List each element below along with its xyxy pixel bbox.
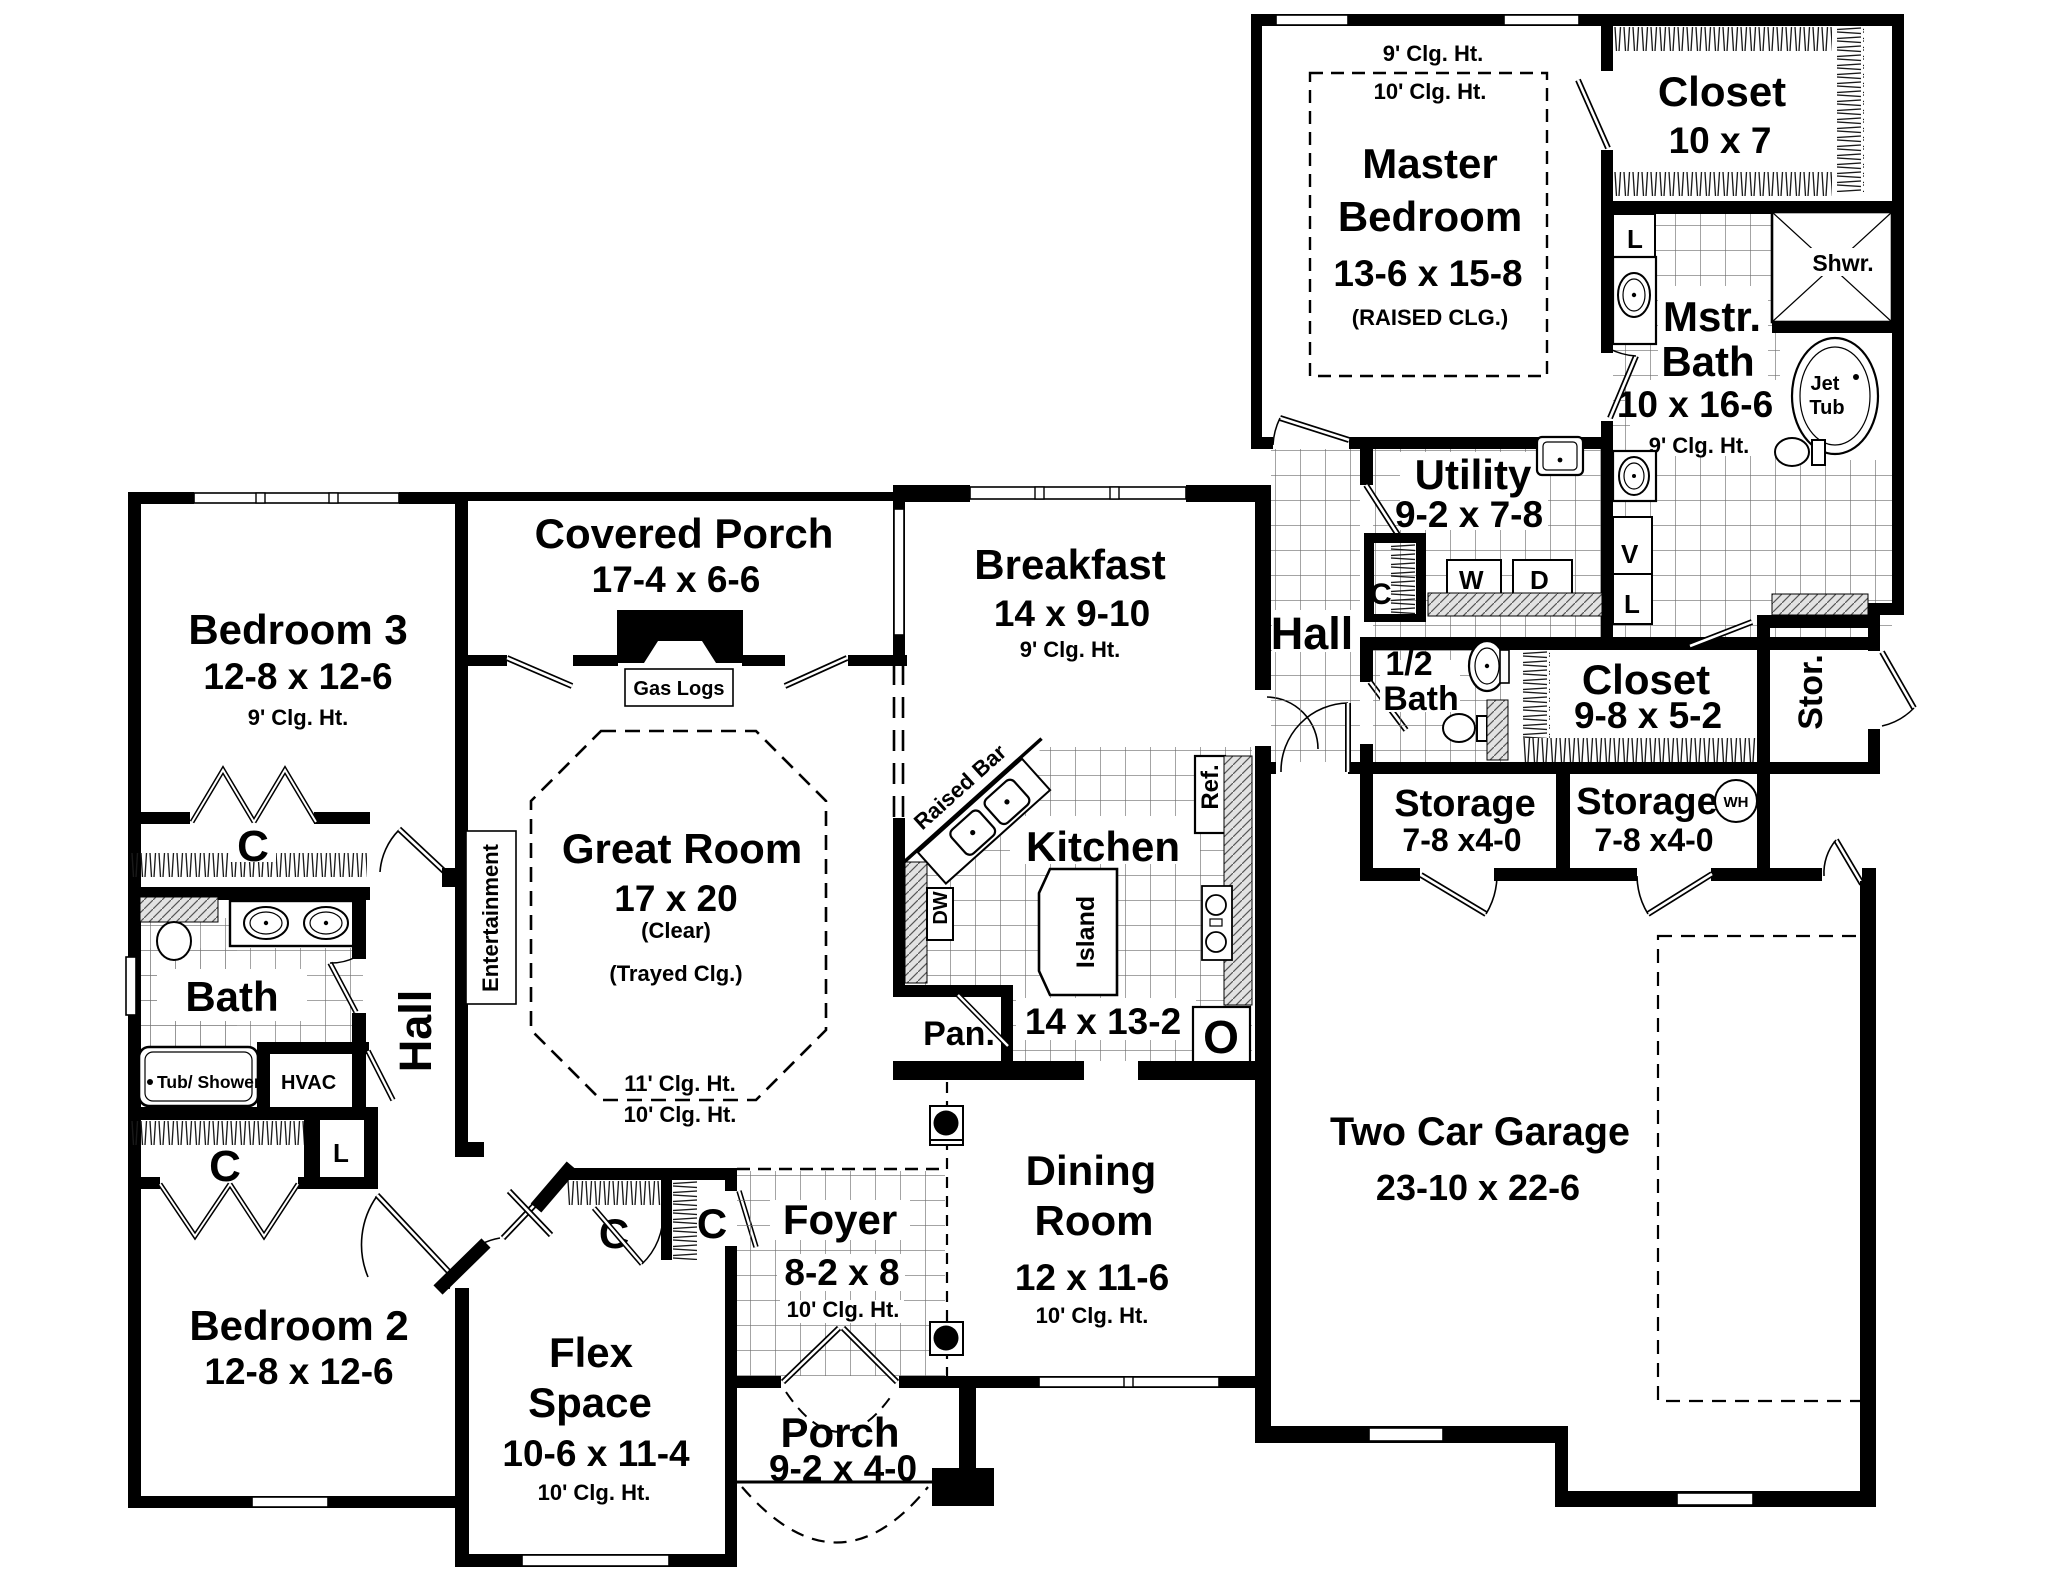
svg-text:Gas Logs: Gas Logs (633, 678, 724, 700)
svg-text:C: C (209, 1142, 241, 1191)
svg-text:Tub: Tub (1809, 397, 1844, 419)
svg-text:Dining: Dining (1026, 1147, 1157, 1194)
svg-text:9' Clg. Ht.: 9' Clg. Ht. (1649, 433, 1750, 458)
svg-text:Kitchen: Kitchen (1026, 823, 1180, 870)
svg-text:DW: DW (930, 891, 952, 924)
svg-text:Great Room: Great Room (562, 825, 802, 872)
svg-text:Breakfast: Breakfast (974, 541, 1165, 588)
svg-text:Hall: Hall (1271, 608, 1354, 659)
svg-text:Utility: Utility (1415, 451, 1532, 498)
svg-text:17-4 x 6-6: 17-4 x 6-6 (592, 559, 761, 600)
svg-text:10' Clg. Ht.: 10' Clg. Ht. (1036, 1303, 1149, 1328)
svg-text:Foyer: Foyer (783, 1196, 897, 1243)
svg-text:Shwr.: Shwr. (1812, 250, 1873, 276)
svg-text:D: D (1530, 565, 1549, 595)
svg-text:Ref.: Ref. (1197, 764, 1224, 809)
svg-text:Covered Porch: Covered Porch (535, 510, 834, 557)
svg-text:7-8 x4-0: 7-8 x4-0 (1402, 822, 1521, 858)
svg-text:9' Clg. Ht.: 9' Clg. Ht. (1383, 41, 1484, 66)
svg-text:Hall: Hall (390, 990, 441, 1073)
svg-text:C: C (237, 822, 269, 871)
svg-text:(RAISED CLG.): (RAISED CLG.) (1352, 305, 1508, 330)
svg-text:10' Clg. Ht.: 10' Clg. Ht. (1374, 79, 1487, 104)
svg-text:HVAC: HVAC (281, 1072, 336, 1094)
svg-text:9-2 x 7-8: 9-2 x 7-8 (1395, 494, 1543, 535)
svg-text:C: C (697, 1200, 727, 1247)
svg-text:Island: Island (1072, 896, 1100, 968)
svg-text:C: C (1370, 578, 1392, 611)
svg-text:Entertainment: Entertainment (478, 843, 503, 992)
svg-text:Bath: Bath (1383, 680, 1459, 718)
svg-text:17 x 20: 17 x 20 (614, 878, 737, 919)
svg-text:9' Clg. Ht.: 9' Clg. Ht. (248, 705, 349, 730)
svg-text:W: W (1459, 565, 1484, 595)
svg-text:12 x 11-6: 12 x 11-6 (1015, 1257, 1169, 1298)
svg-text:10' Clg. Ht.: 10' Clg. Ht. (624, 1102, 737, 1127)
svg-text:Two Car Garage: Two Car Garage (1330, 1110, 1630, 1154)
svg-text:L: L (333, 1138, 349, 1168)
svg-text:Stor.: Stor. (1792, 654, 1830, 730)
svg-text:Space: Space (528, 1379, 652, 1426)
svg-text:Closet: Closet (1658, 68, 1786, 115)
svg-text:7-8 x4-0: 7-8 x4-0 (1594, 822, 1713, 858)
svg-text:10-6 x 11-4: 10-6 x 11-4 (502, 1433, 690, 1474)
svg-text:Room: Room (1035, 1197, 1154, 1244)
svg-text:Storage: Storage (1576, 781, 1717, 823)
svg-text:WH: WH (1724, 794, 1749, 811)
svg-text:9' Clg. Ht.: 9' Clg. Ht. (1020, 637, 1121, 662)
svg-text:12-8 x 12-6: 12-8 x 12-6 (203, 656, 392, 697)
svg-text:O: O (1203, 1011, 1239, 1063)
svg-text:Bedroom: Bedroom (1338, 193, 1522, 240)
svg-text:Bath: Bath (1661, 338, 1754, 385)
svg-text:23-10 x 22-6: 23-10 x 22-6 (1376, 1167, 1580, 1208)
svg-text:Bedroom 3: Bedroom 3 (188, 606, 407, 653)
svg-text:10' Clg. Ht.: 10' Clg. Ht. (787, 1297, 900, 1322)
svg-text:Bath: Bath (185, 973, 278, 1020)
svg-text:Storage: Storage (1394, 783, 1535, 825)
svg-text:Mstr.: Mstr. (1663, 293, 1761, 340)
svg-text:13-6 x 15-8: 13-6 x 15-8 (1333, 253, 1522, 294)
svg-text:Master: Master (1362, 140, 1497, 187)
svg-text:Jet: Jet (1811, 373, 1840, 395)
svg-text:L: L (1624, 589, 1640, 619)
svg-text:Bedroom 2: Bedroom 2 (189, 1302, 408, 1349)
svg-text:12-8 x 12-6: 12-8 x 12-6 (204, 1351, 393, 1392)
svg-text:V: V (1621, 539, 1639, 569)
svg-text:8-2 x 8: 8-2 x 8 (784, 1252, 899, 1293)
svg-text:11' Clg. Ht.: 11' Clg. Ht. (624, 1071, 736, 1096)
svg-text:14 x 13-2: 14 x 13-2 (1025, 1001, 1181, 1042)
svg-text:9-8 x 5-2: 9-8 x 5-2 (1574, 695, 1722, 736)
svg-text:Tub/ Shower: Tub/ Shower (157, 1072, 261, 1092)
svg-text:10 x 16-6: 10 x 16-6 (1617, 384, 1773, 425)
svg-text:(Clear): (Clear) (641, 918, 711, 943)
svg-text:(Trayed Clg.): (Trayed Clg.) (609, 961, 742, 986)
svg-text:10' Clg. Ht.: 10' Clg. Ht. (538, 1480, 651, 1505)
svg-text:10 x 7: 10 x 7 (1669, 120, 1772, 161)
svg-text:1/2: 1/2 (1385, 645, 1432, 683)
svg-text:L: L (1627, 224, 1643, 254)
svg-text:14 x 9-10: 14 x 9-10 (994, 593, 1150, 634)
svg-text:Flex: Flex (549, 1329, 634, 1376)
